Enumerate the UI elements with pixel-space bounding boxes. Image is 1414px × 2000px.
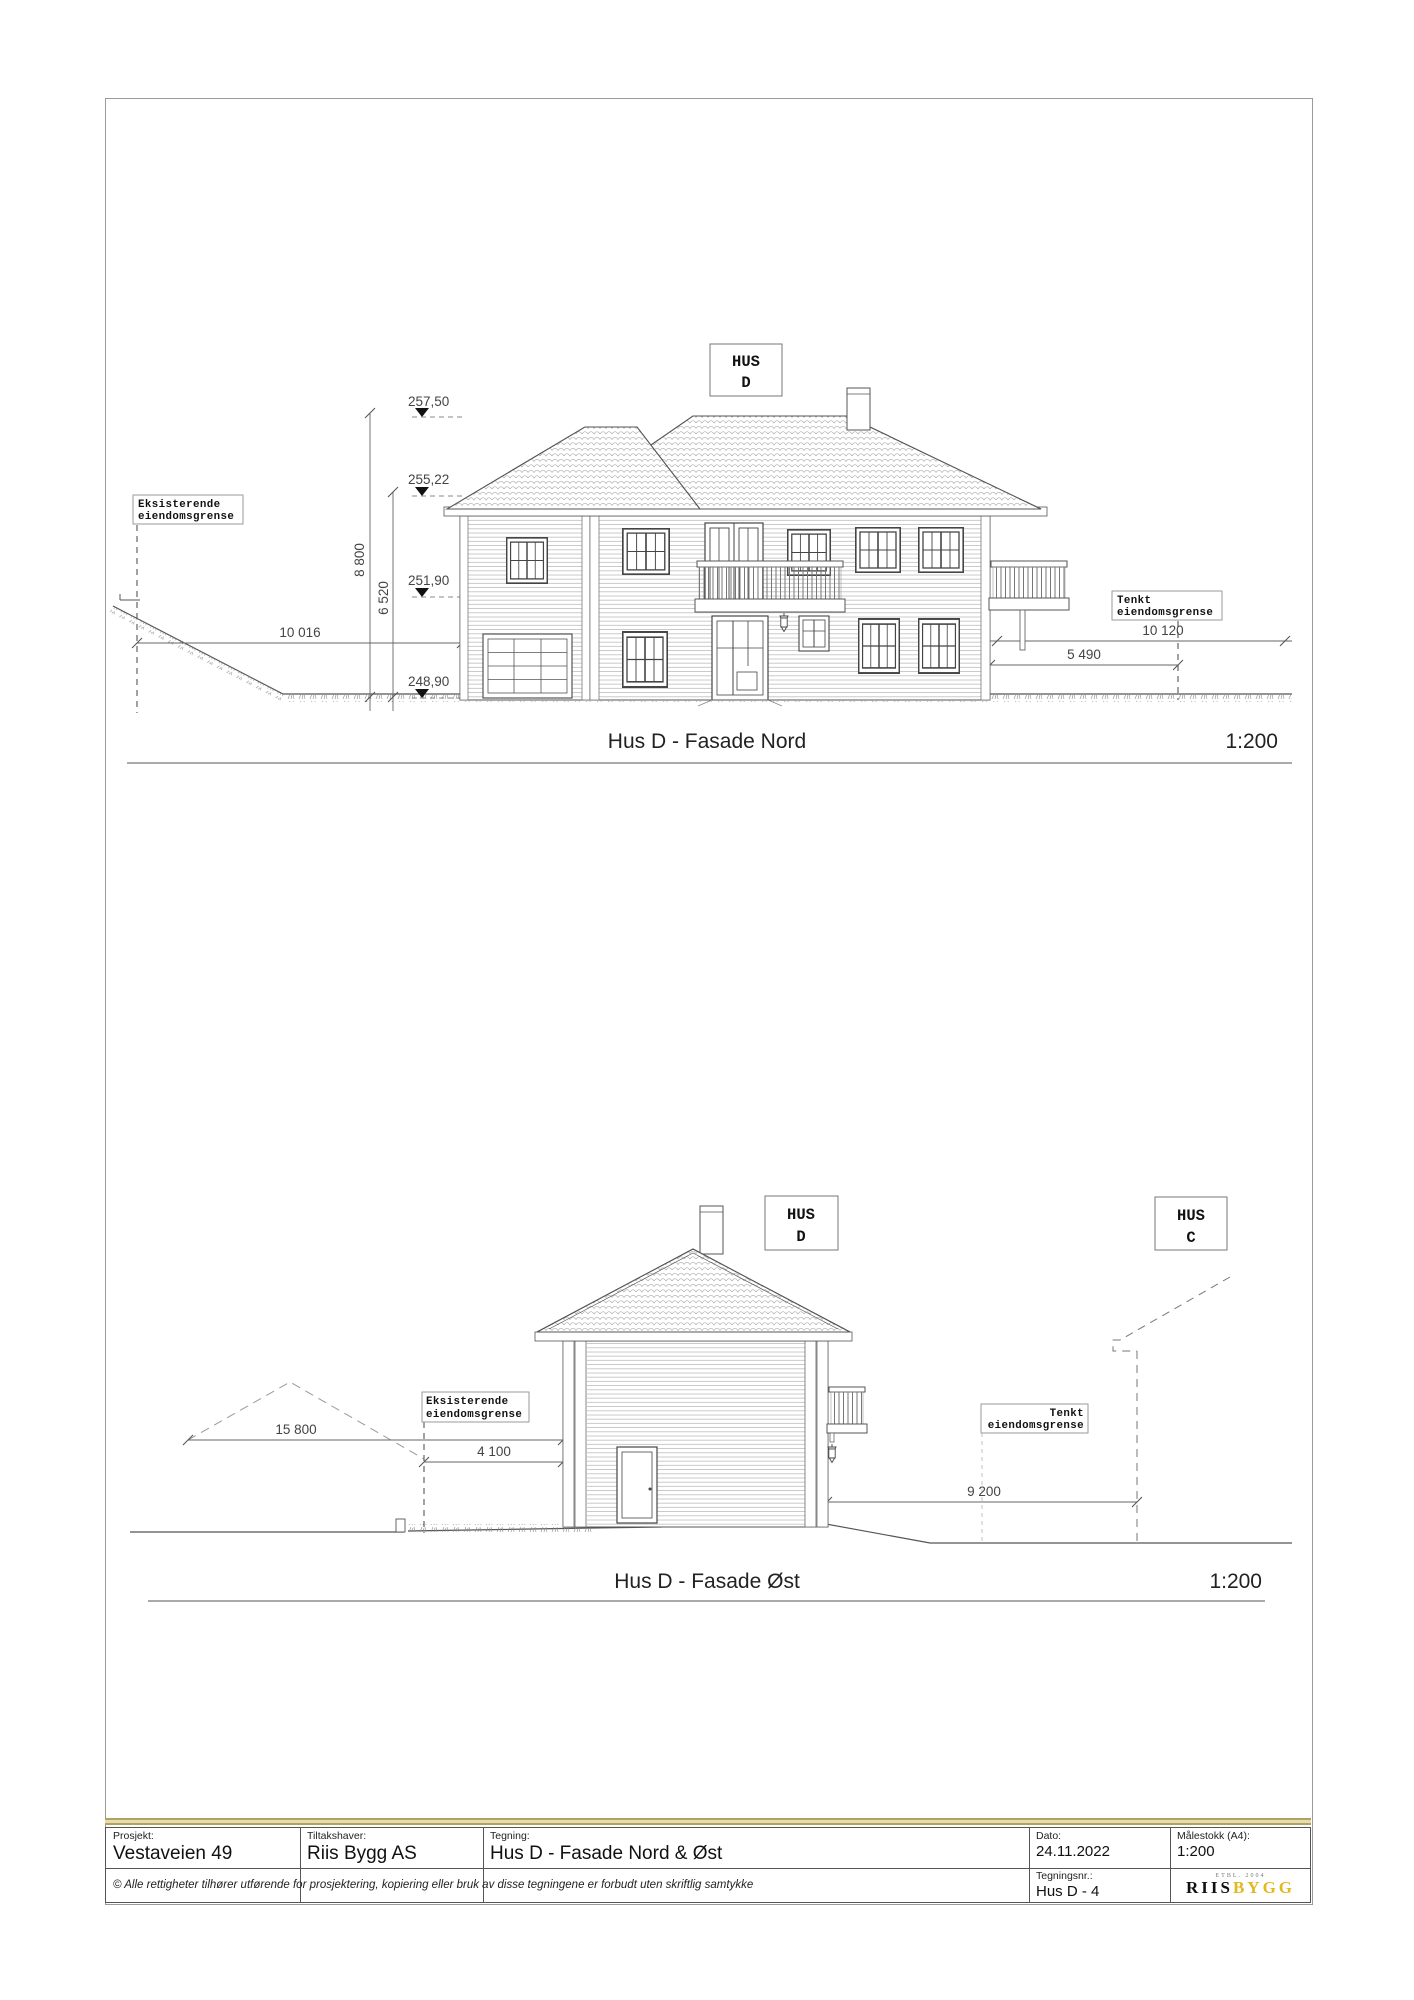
caption-north: Hus D - Fasade Nord — [0, 730, 1414, 754]
existing-building-outline — [188, 1382, 424, 1459]
caption-east-scale: 1:200 — [1209, 1570, 1262, 1594]
caption-north-rule — [127, 762, 1292, 764]
level-eave: 255,22 — [408, 472, 449, 487]
dim-eave-height: 6 520 — [376, 581, 391, 615]
date-label: Dato: — [1036, 1831, 1163, 1842]
hus-tag-line1: HUS — [732, 353, 760, 371]
house-east-facade — [535, 1206, 867, 1527]
drawing-value: Hus D - Fasade Nord & Øst — [490, 1843, 1022, 1865]
side-balcony — [827, 1387, 867, 1442]
hus-c-tag: HUS C — [1155, 1197, 1227, 1250]
level-ground: 248,90 — [408, 674, 449, 689]
hus-tag-line1: HUS — [787, 1206, 815, 1224]
dim-left-distance: 15 800 — [275, 1422, 316, 1437]
boundary-planned-north: Tenkt eiendomsgrense — [1112, 591, 1222, 700]
label-existing-boundary-line1: Eksisterende — [426, 1396, 509, 1408]
dim-left-distance: 10 016 — [279, 625, 320, 640]
riis-bygg-logo: RIISBYGG — [1186, 1879, 1295, 1897]
small-window — [799, 616, 829, 651]
balcony — [695, 561, 845, 612]
elevation-drawings: Eksisterende eiendomsgrense Tenkt eiendo… — [0, 0, 1414, 2000]
chimney — [700, 1206, 723, 1254]
project-cell: Prosjekt: Vestaveien 49 — [106, 1828, 300, 1868]
project-value: Vestaveien 49 — [113, 1843, 293, 1865]
window — [919, 619, 960, 673]
window — [623, 529, 669, 574]
project-label: Prosjekt: — [113, 1831, 293, 1842]
caption-east-rule — [148, 1600, 1265, 1602]
boundary-existing-north: Eksisterende eiendomsgrense — [133, 495, 243, 713]
label-existing-boundary-line1: Eksisterende — [138, 499, 221, 511]
house-north-facade — [444, 388, 1069, 706]
caption-east: Hus D - Fasade Øst — [0, 1570, 1414, 1594]
hus-tag-line2: C — [1186, 1229, 1195, 1247]
level-markers: 257,50 255,22 251,90 248,90 — [408, 394, 462, 698]
hus-tag-line2: D — [796, 1228, 805, 1246]
height-dimensions: 8 800 6 520 — [352, 408, 398, 711]
drawing-number-value: Hus D - 4 — [1036, 1883, 1163, 1900]
scale-cell: Målestokk (A4): 1:200 — [1170, 1828, 1311, 1868]
drawing-cell: Tegning: Hus D - Fasade Nord & Øst — [483, 1828, 1029, 1868]
window — [859, 619, 900, 673]
label-existing-boundary-line2: eiendomsgrense — [138, 511, 234, 523]
level-ridge: 257,50 — [408, 394, 449, 409]
accent-rule — [105, 1818, 1311, 1825]
window — [623, 632, 667, 687]
copyright-cell: © Alle rettigheter tilhører utførende fo… — [106, 1868, 1029, 1902]
east-elevation: Eksisterende eiendomsgrense Tenkt eiendo… — [130, 1196, 1292, 1543]
caption-north-scale: 1:200 — [1225, 730, 1278, 754]
logo-bygg: BYGG — [1233, 1878, 1295, 1897]
chimney — [847, 388, 870, 430]
boundary-existing-east: Eksisterende eiendomsgrense — [422, 1392, 529, 1533]
date-cell: Dato: 24.11.2022 — [1029, 1828, 1170, 1868]
label-planned-boundary-line1: Tenkt — [1117, 595, 1151, 607]
drawing-label: Tegning: — [490, 1831, 1022, 1842]
eave-fascia — [535, 1332, 852, 1341]
drawing-sheet: Eksisterende eiendomsgrense Tenkt eiendo… — [0, 0, 1414, 2000]
wall-lamp — [828, 1444, 836, 1463]
pyramid-roof — [537, 1249, 850, 1332]
dim-total-height: 8 800 — [352, 543, 367, 577]
label-planned-boundary-line2: eiendomsgrense — [1117, 607, 1213, 619]
logo-riis: RIIS — [1186, 1878, 1233, 1897]
window — [919, 528, 963, 572]
hus-d-tag-east: HUS D — [765, 1196, 838, 1250]
hus-tag-line1: HUS — [1177, 1207, 1205, 1225]
hus-tag-line2: D — [741, 374, 750, 392]
date-value: 24.11.2022 — [1036, 1843, 1163, 1860]
client-cell: Tiltakshaver: Riis Bygg AS — [300, 1828, 483, 1868]
dim-right-near: 5 490 — [1067, 647, 1101, 662]
north-elevation: Eksisterende eiendomsgrense Tenkt eiendo… — [110, 344, 1292, 713]
entry-door — [712, 616, 768, 700]
label-existing-boundary-line2: eiendomsgrense — [426, 1409, 522, 1421]
window — [507, 538, 548, 583]
drawing-number-label: Tegningsnr.: — [1036, 1871, 1163, 1882]
dim-right-far: 10 120 — [1142, 623, 1183, 638]
dim-mid-distance: 4 100 — [477, 1444, 511, 1459]
client-label: Tiltakshaver: — [307, 1831, 476, 1842]
client-value: Riis Bygg AS — [307, 1843, 476, 1865]
garage-door — [483, 634, 572, 698]
scale-value: 1:200 — [1177, 1843, 1304, 1860]
label-planned-boundary-line1: Tenkt — [1050, 1408, 1084, 1420]
dim-right-distance: 9 200 — [967, 1484, 1001, 1499]
drawing-number-cell: Tegningsnr.: Hus D - 4 — [1029, 1868, 1170, 1902]
logo-cell: ETBL. 2004 RIISBYGG — [1170, 1868, 1311, 1902]
east-door — [617, 1447, 657, 1523]
hus-c-outline — [1113, 1277, 1230, 1543]
title-block: Prosjekt: Vestaveien 49 Tiltakshaver: Ri… — [105, 1827, 1311, 1903]
boundary-planned-east: Tenkt eiendomsgrense — [981, 1404, 1088, 1543]
hus-d-tag-north: HUS D — [710, 344, 782, 396]
window — [856, 528, 900, 572]
level-floor2: 251,90 — [408, 573, 449, 588]
scale-label: Målestokk (A4): — [1177, 1831, 1304, 1842]
label-planned-boundary-line2: eiendomsgrense — [988, 1420, 1084, 1432]
copyright-text: © Alle rettigheter tilhører utførende fo… — [113, 1879, 753, 1891]
